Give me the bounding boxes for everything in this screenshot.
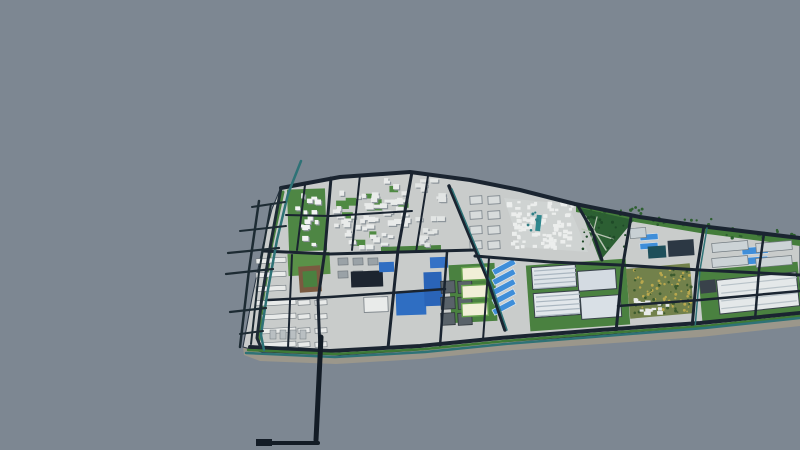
dark-flat-building (351, 270, 384, 287)
east-dark-utility (699, 279, 716, 294)
3d-city-viewport[interactable] (0, 0, 800, 450)
factory-teal-roof-hall (648, 245, 667, 258)
water-pool-small-a (379, 262, 394, 273)
stadium-field (302, 271, 317, 288)
city-model-scene[interactable] (0, 0, 800, 450)
water-pool-large (396, 290, 427, 315)
factory-dark-navy-hall (667, 239, 694, 257)
factory-white-hall (630, 227, 647, 238)
warehouse-roof-b (577, 269, 616, 292)
white-hall-center (364, 297, 389, 313)
warehouse-roof-d (580, 295, 621, 320)
south-access-road-junction (256, 439, 272, 446)
